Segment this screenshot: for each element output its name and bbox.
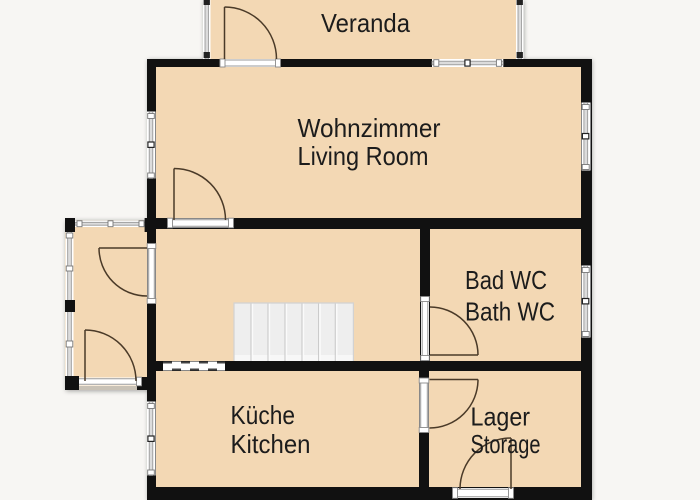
svg-text:Storage: Storage xyxy=(471,429,541,459)
svg-text:Küche: Küche xyxy=(231,400,296,430)
svg-text:Veranda: Veranda xyxy=(321,8,410,38)
svg-text:Kitchen: Kitchen xyxy=(231,429,311,459)
svg-text:Bath WC: Bath WC xyxy=(465,297,555,327)
svg-text:Wohnzimmer: Wohnzimmer xyxy=(298,113,441,143)
svg-text:Living Room: Living Room xyxy=(298,141,429,171)
svg-text:Lager: Lager xyxy=(471,401,531,431)
svg-text:Bad WC: Bad WC xyxy=(465,265,547,295)
